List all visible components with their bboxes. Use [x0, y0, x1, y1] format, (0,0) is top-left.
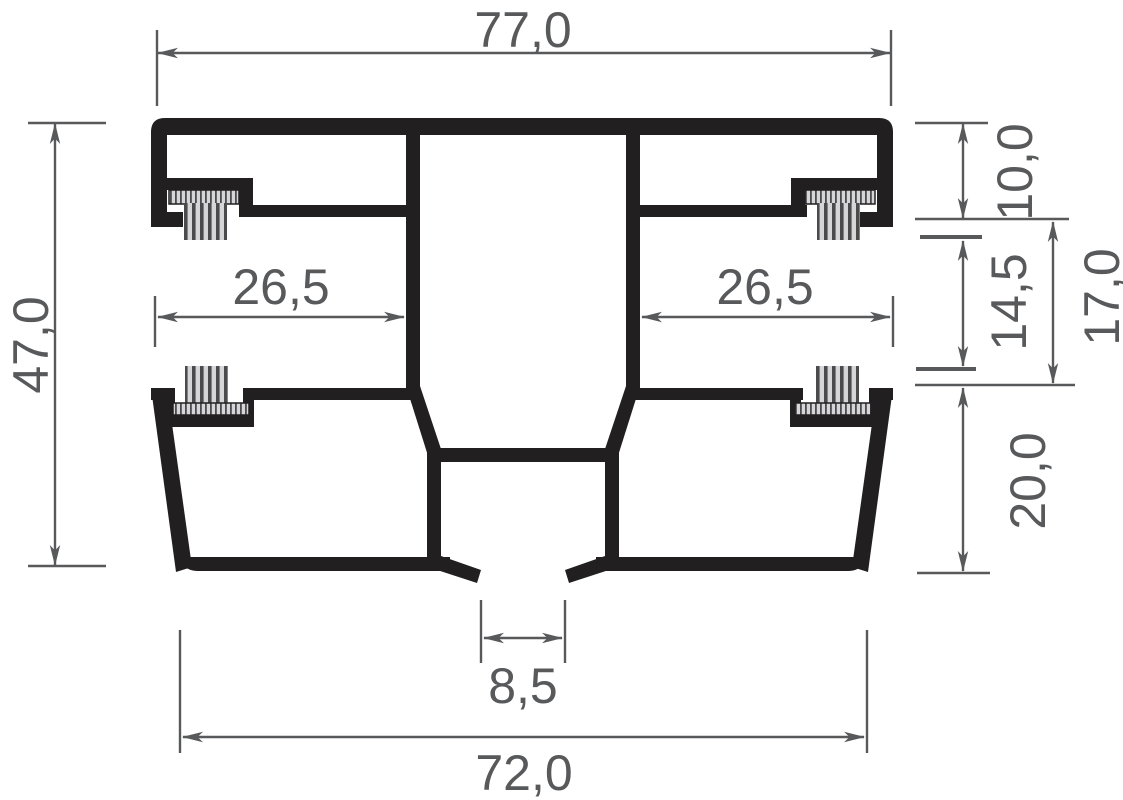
- center-right-wall: [626, 135, 640, 391]
- dimension-label: 14,5: [981, 253, 1037, 350]
- upper-right-flange: [626, 205, 807, 217]
- dimension-label: 26,5: [232, 259, 329, 315]
- dim-right-groove: 26,5: [642, 259, 893, 347]
- lower-right-pocket-floor: [790, 415, 880, 427]
- dimension-label: 8,5: [488, 658, 558, 714]
- dimension-label: 26,5: [716, 259, 813, 315]
- dim-pile-gap: 14,5: [916, 237, 1037, 369]
- upper-left-brush-holder: [169, 190, 239, 204]
- upper-left-ledge: [151, 178, 253, 190]
- dimension-label: 47,0: [3, 296, 59, 393]
- dimension-label: 72,0: [475, 745, 572, 800]
- lower-right-bottom: [596, 557, 866, 571]
- lower-right-brush-bristles: [816, 366, 859, 403]
- lower-right-brush-seal: [795, 366, 871, 415]
- center-box-bottom: [427, 448, 619, 462]
- upper-left-wall-foot: [166, 212, 183, 227]
- dim-top-chamber-height: 10,0: [915, 123, 1069, 221]
- dim-bottom-width: 72,0: [180, 630, 867, 800]
- aluminium-profile-body: [151, 118, 893, 583]
- dimension-label: 10,0: [987, 123, 1043, 220]
- lower-left-pocket-floor: [164, 415, 254, 427]
- dim-foot-gap: 8,5: [481, 600, 565, 714]
- upper-right-brush-bristles: [817, 203, 860, 240]
- dimension-label: 17,0: [1074, 248, 1123, 345]
- lower-right-brush-holder: [795, 403, 871, 415]
- dimension-label: 77,0: [474, 2, 571, 58]
- upper-right-brush-holder: [805, 190, 875, 204]
- dimension-label: 20,0: [1000, 432, 1056, 529]
- profile-cross-section-drawing: 77,0 47,0 26,5 26,5 10,0: [0, 0, 1123, 800]
- lower-left-brush-seal: [173, 366, 249, 415]
- center-left-wall: [406, 135, 420, 391]
- dim-left-groove: 26,5: [155, 259, 404, 347]
- lower-right-top-b: [631, 388, 803, 400]
- upper-left-brush-bristles: [184, 203, 227, 240]
- center-right-leg: [605, 456, 619, 562]
- dim-overall-height: 47,0: [3, 123, 106, 566]
- lower-left-brush-bristles: [185, 366, 228, 403]
- dim-overall-width: 77,0: [157, 2, 891, 106]
- upper-right-wall-foot: [860, 212, 877, 227]
- center-left-leg: [427, 456, 441, 562]
- upper-right-ledge: [791, 178, 893, 190]
- lower-left-brush-holder: [173, 403, 249, 415]
- upper-left-flange: [239, 205, 420, 217]
- dim-bottom-chamber-height: 20,0: [917, 388, 1056, 573]
- lower-left-bottom: [180, 557, 450, 571]
- technical-drawing-canvas: 77,0 47,0 26,5 26,5 10,0: [0, 0, 1123, 800]
- lower-left-top-b: [243, 388, 415, 400]
